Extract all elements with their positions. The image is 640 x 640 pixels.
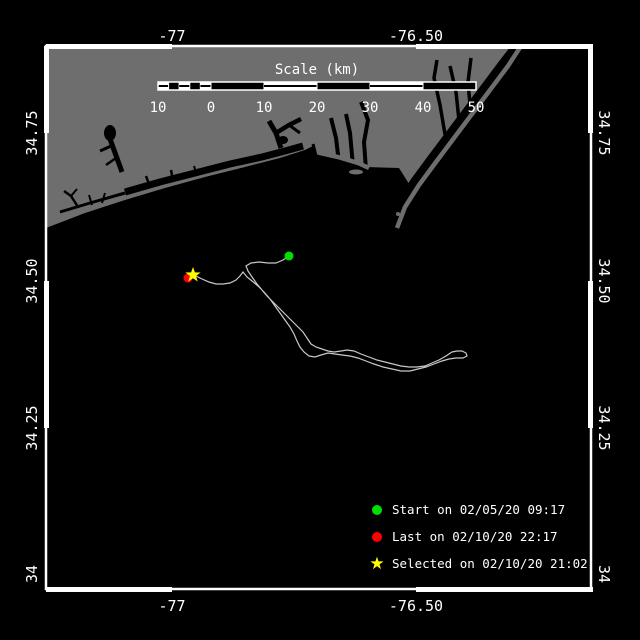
- lat-label-left-34: 34: [23, 565, 41, 583]
- lat-label-right-3475: 34.75: [595, 110, 613, 155]
- scale-tick-10l: 10: [150, 100, 167, 116]
- scale-tick-10: 10: [256, 100, 273, 116]
- selected-marker-icon: ★: [362, 559, 392, 569]
- legend-item-start: Start on 02/05/20 09:17: [362, 496, 588, 523]
- lon-label-bottom-right: -76.50: [389, 597, 443, 615]
- drifter-track-line[interactable]: [193, 256, 467, 371]
- scale-bar: [158, 82, 476, 90]
- start-marker[interactable]: [285, 252, 294, 261]
- scale-bar-title: Scale (km): [275, 62, 359, 78]
- lon-label-top-left: -77: [158, 27, 185, 45]
- lat-label-right-34: 34: [595, 565, 613, 583]
- legend-item-selected: ★ Selected on 02/10/20 21:02: [362, 550, 588, 577]
- start-marker-icon: [362, 505, 392, 515]
- harkers-island: [349, 170, 363, 175]
- legend-last-label: Last on 02/10/20 22:17: [392, 529, 558, 544]
- scale-tick-0: 0: [207, 100, 215, 116]
- drifter-track-map-window: -77 -76.50 -77 -76.50 34.75 34.50 34.25 …: [0, 0, 640, 640]
- legend-start-label: Start on 02/05/20 09:17: [392, 502, 565, 517]
- legend: Start on 02/05/20 09:17 Last on 02/10/20…: [362, 496, 588, 577]
- scale-tick-50: 50: [468, 100, 485, 116]
- lat-label-left-3450: 34.50: [23, 258, 41, 303]
- lat-label-right-3425: 34.25: [595, 405, 613, 450]
- last-marker-icon: [362, 532, 392, 542]
- legend-selected-label: Selected on 02/10/20 21:02: [392, 556, 588, 571]
- legend-item-last: Last on 02/10/20 22:17: [362, 523, 588, 550]
- lat-label-left-3425: 34.25: [23, 405, 41, 450]
- lat-label-left-3475: 34.75: [23, 110, 41, 155]
- scale-tick-40: 40: [415, 100, 432, 116]
- scale-tick-20: 20: [309, 100, 326, 116]
- lon-label-top-right: -76.50: [389, 27, 443, 45]
- scale-tick-30: 30: [362, 100, 379, 116]
- lat-label-right-3450: 34.50: [595, 258, 613, 303]
- lon-label-bottom-left: -77: [158, 597, 185, 615]
